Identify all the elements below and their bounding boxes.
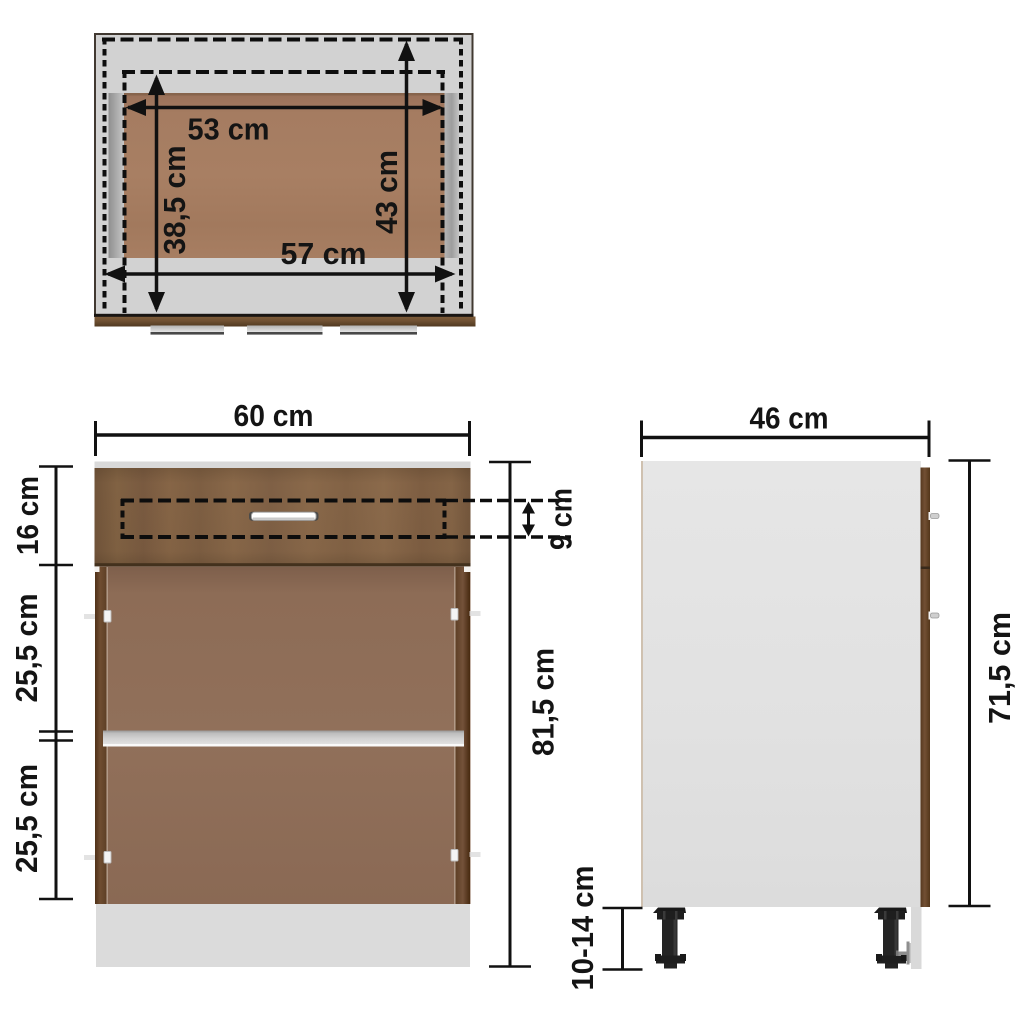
- svg-text:9 cm: 9 cm: [544, 488, 579, 550]
- svg-text:25,5 cm: 25,5 cm: [9, 764, 44, 873]
- svg-text:25,5 cm: 25,5 cm: [9, 594, 44, 703]
- svg-text:53 cm: 53 cm: [188, 112, 270, 147]
- svg-text:57 cm: 57 cm: [281, 236, 367, 271]
- svg-text:46 cm: 46 cm: [750, 401, 829, 436]
- svg-text:10-14 cm: 10-14 cm: [565, 866, 600, 991]
- svg-text:71,5 cm: 71,5 cm: [982, 612, 1017, 724]
- svg-text:16 cm: 16 cm: [10, 476, 45, 555]
- svg-text:38,5 cm: 38,5 cm: [157, 146, 192, 255]
- svg-text:43 cm: 43 cm: [369, 150, 404, 234]
- svg-text:81,5 cm: 81,5 cm: [526, 648, 561, 756]
- svg-text:60 cm: 60 cm: [234, 398, 314, 433]
